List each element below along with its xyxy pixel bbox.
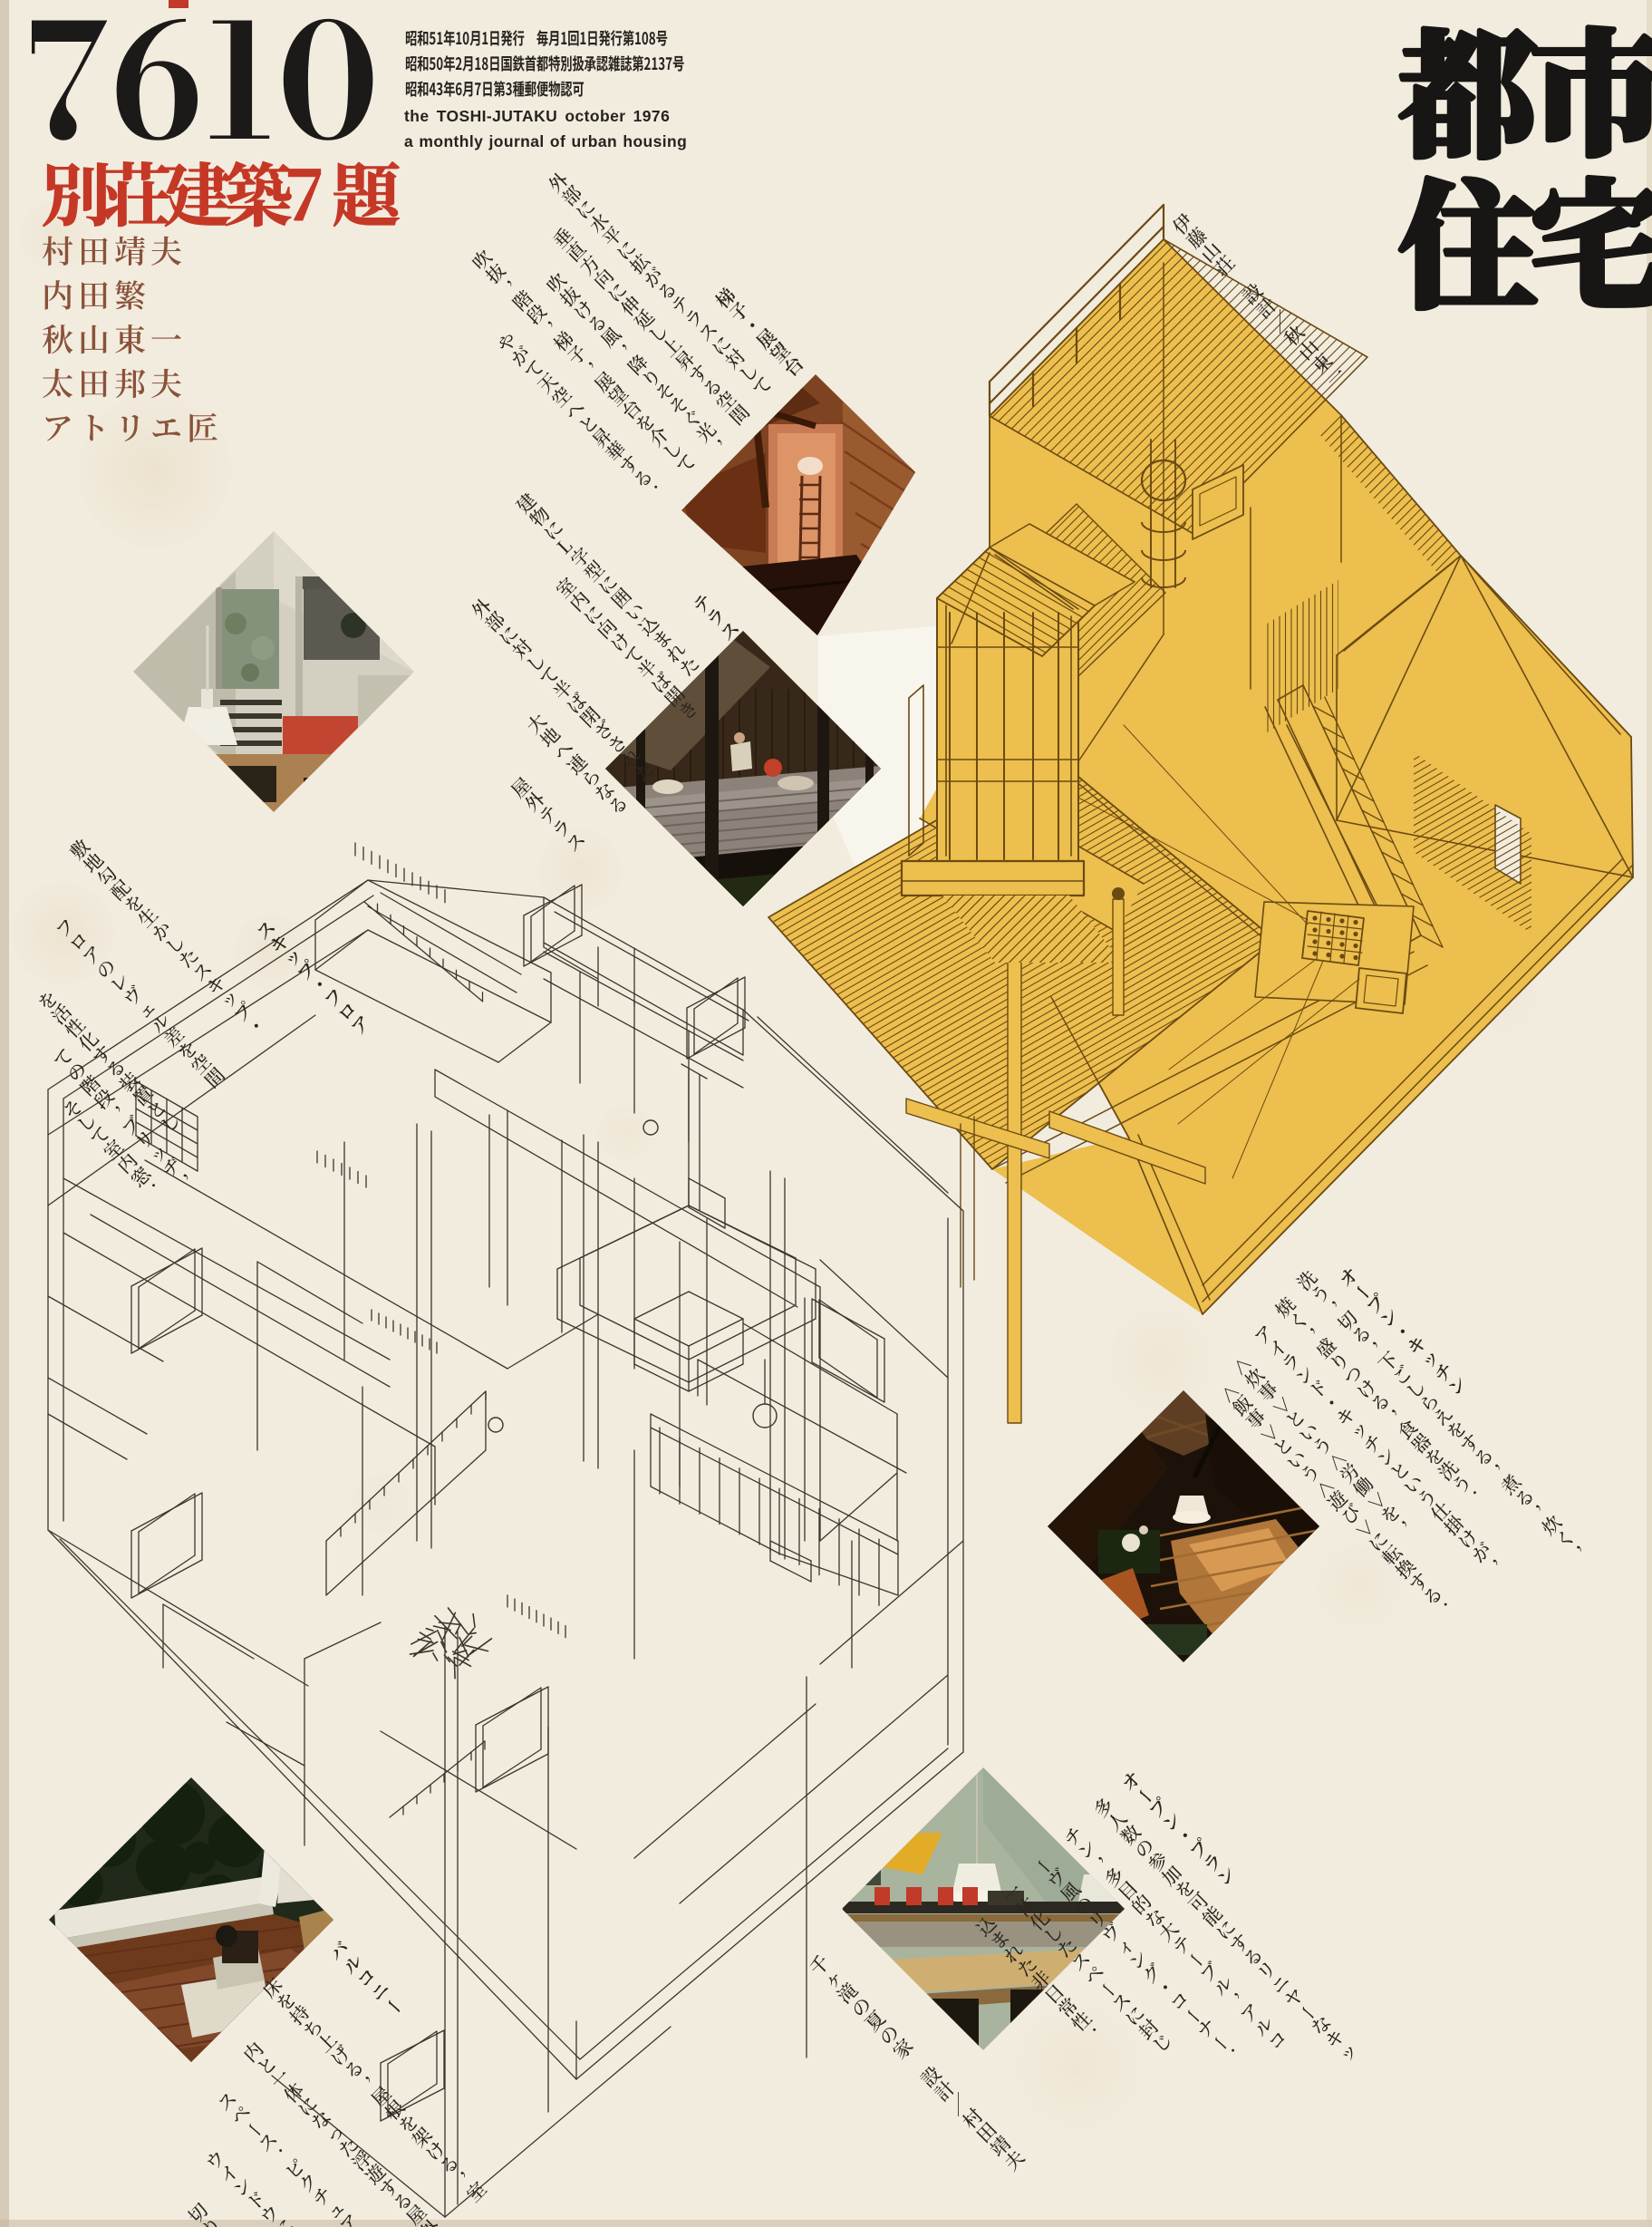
svg-text:the TOSHI-JUTAKU october 1976: the TOSHI-JUTAKU october 1976 <box>404 107 670 125</box>
svg-text:a monthly journal of urban hou: a monthly journal of urban housing <box>404 132 687 150</box>
